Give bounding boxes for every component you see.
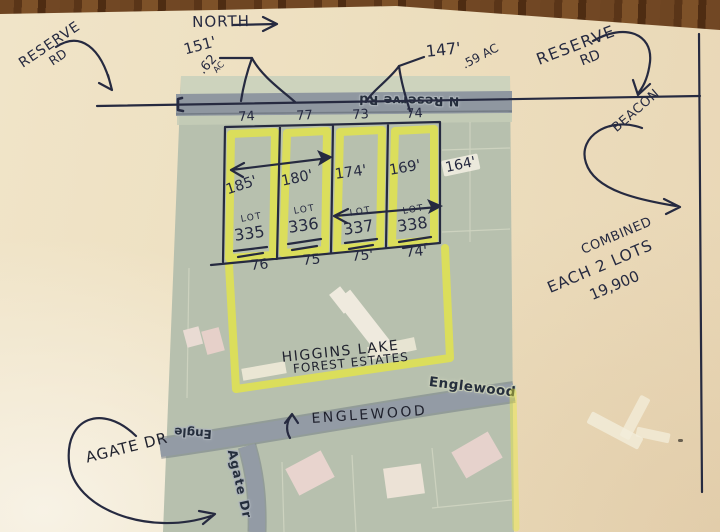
leader-147: [366, 57, 424, 111]
englewood-up-arrow: [285, 414, 298, 438]
lot-337-rear: 75': [351, 247, 374, 265]
beacon-road-pen-line: [699, 34, 702, 492]
dimension-147: 147': [425, 39, 462, 61]
beacon-arrow: [584, 124, 680, 214]
ink-speck: [678, 439, 683, 442]
leader-151: [220, 58, 295, 102]
lot-338-rear: 74': [405, 243, 428, 261]
lot-335-rear: 76: [250, 256, 269, 274]
lot-337-frontage: 73: [352, 108, 369, 124]
lot-335-frontage: 74: [238, 110, 255, 126]
lot-336-frontage: 77: [296, 109, 313, 125]
arrowhead-1: [317, 150, 333, 166]
lot-338-frontage: 74: [406, 107, 423, 123]
reserve-road-pen-line: [97, 96, 700, 106]
north-label: NORTH: [192, 13, 250, 31]
photographed-plat-map: N Reserve Rd Englewood Engle Agate Dr: [0, 0, 720, 532]
lot-336-rear: 75: [302, 251, 321, 269]
